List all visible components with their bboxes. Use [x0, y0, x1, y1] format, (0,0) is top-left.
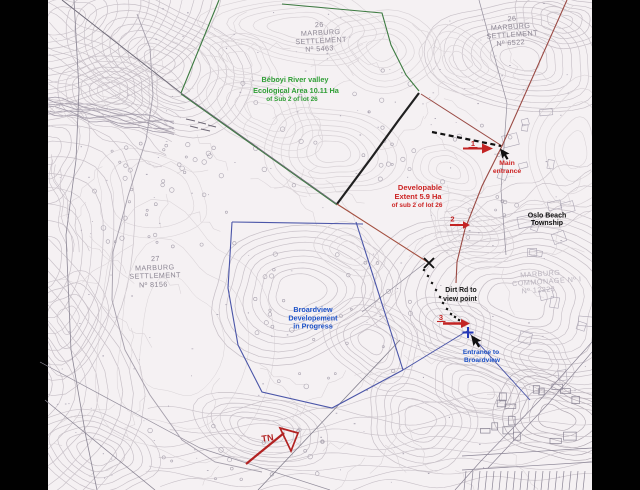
svg-text:Béboyi River valley: Béboyi River valley — [262, 75, 330, 84]
svg-text:in Progress: in Progress — [293, 322, 333, 331]
svg-text:Nº 5463: Nº 5463 — [305, 43, 334, 53]
svg-text:TN: TN — [261, 432, 274, 444]
svg-text:of sub 2 of lot 26: of sub 2 of lot 26 — [392, 202, 443, 209]
svg-text:entrance: entrance — [493, 168, 522, 175]
svg-text:3: 3 — [439, 313, 443, 322]
svg-text:Extent 5.9 Ha: Extent 5.9 Ha — [394, 192, 442, 201]
svg-text:view point: view point — [443, 296, 477, 303]
svg-text:27: 27 — [151, 254, 160, 263]
svg-text:Nº 8156: Nº 8156 — [139, 280, 168, 290]
svg-text:Developable: Developable — [398, 183, 442, 192]
svg-text:Main: Main — [499, 160, 514, 167]
svg-text:Township: Township — [531, 220, 563, 227]
svg-text:Dirt Rd to: Dirt Rd to — [445, 287, 476, 294]
svg-text:Entrance to: Entrance to — [463, 349, 499, 356]
svg-text:Broardview: Broardview — [464, 357, 501, 364]
svg-text:1: 1 — [471, 139, 475, 148]
svg-text:2: 2 — [450, 215, 454, 224]
svg-text:of Sub 2 of lot 26: of Sub 2 of lot 26 — [266, 96, 318, 103]
svg-text:Oslo Beach: Oslo Beach — [528, 213, 567, 220]
svg-text:Ecological Area 10.11 Ha: Ecological Area 10.11 Ha — [253, 86, 340, 95]
